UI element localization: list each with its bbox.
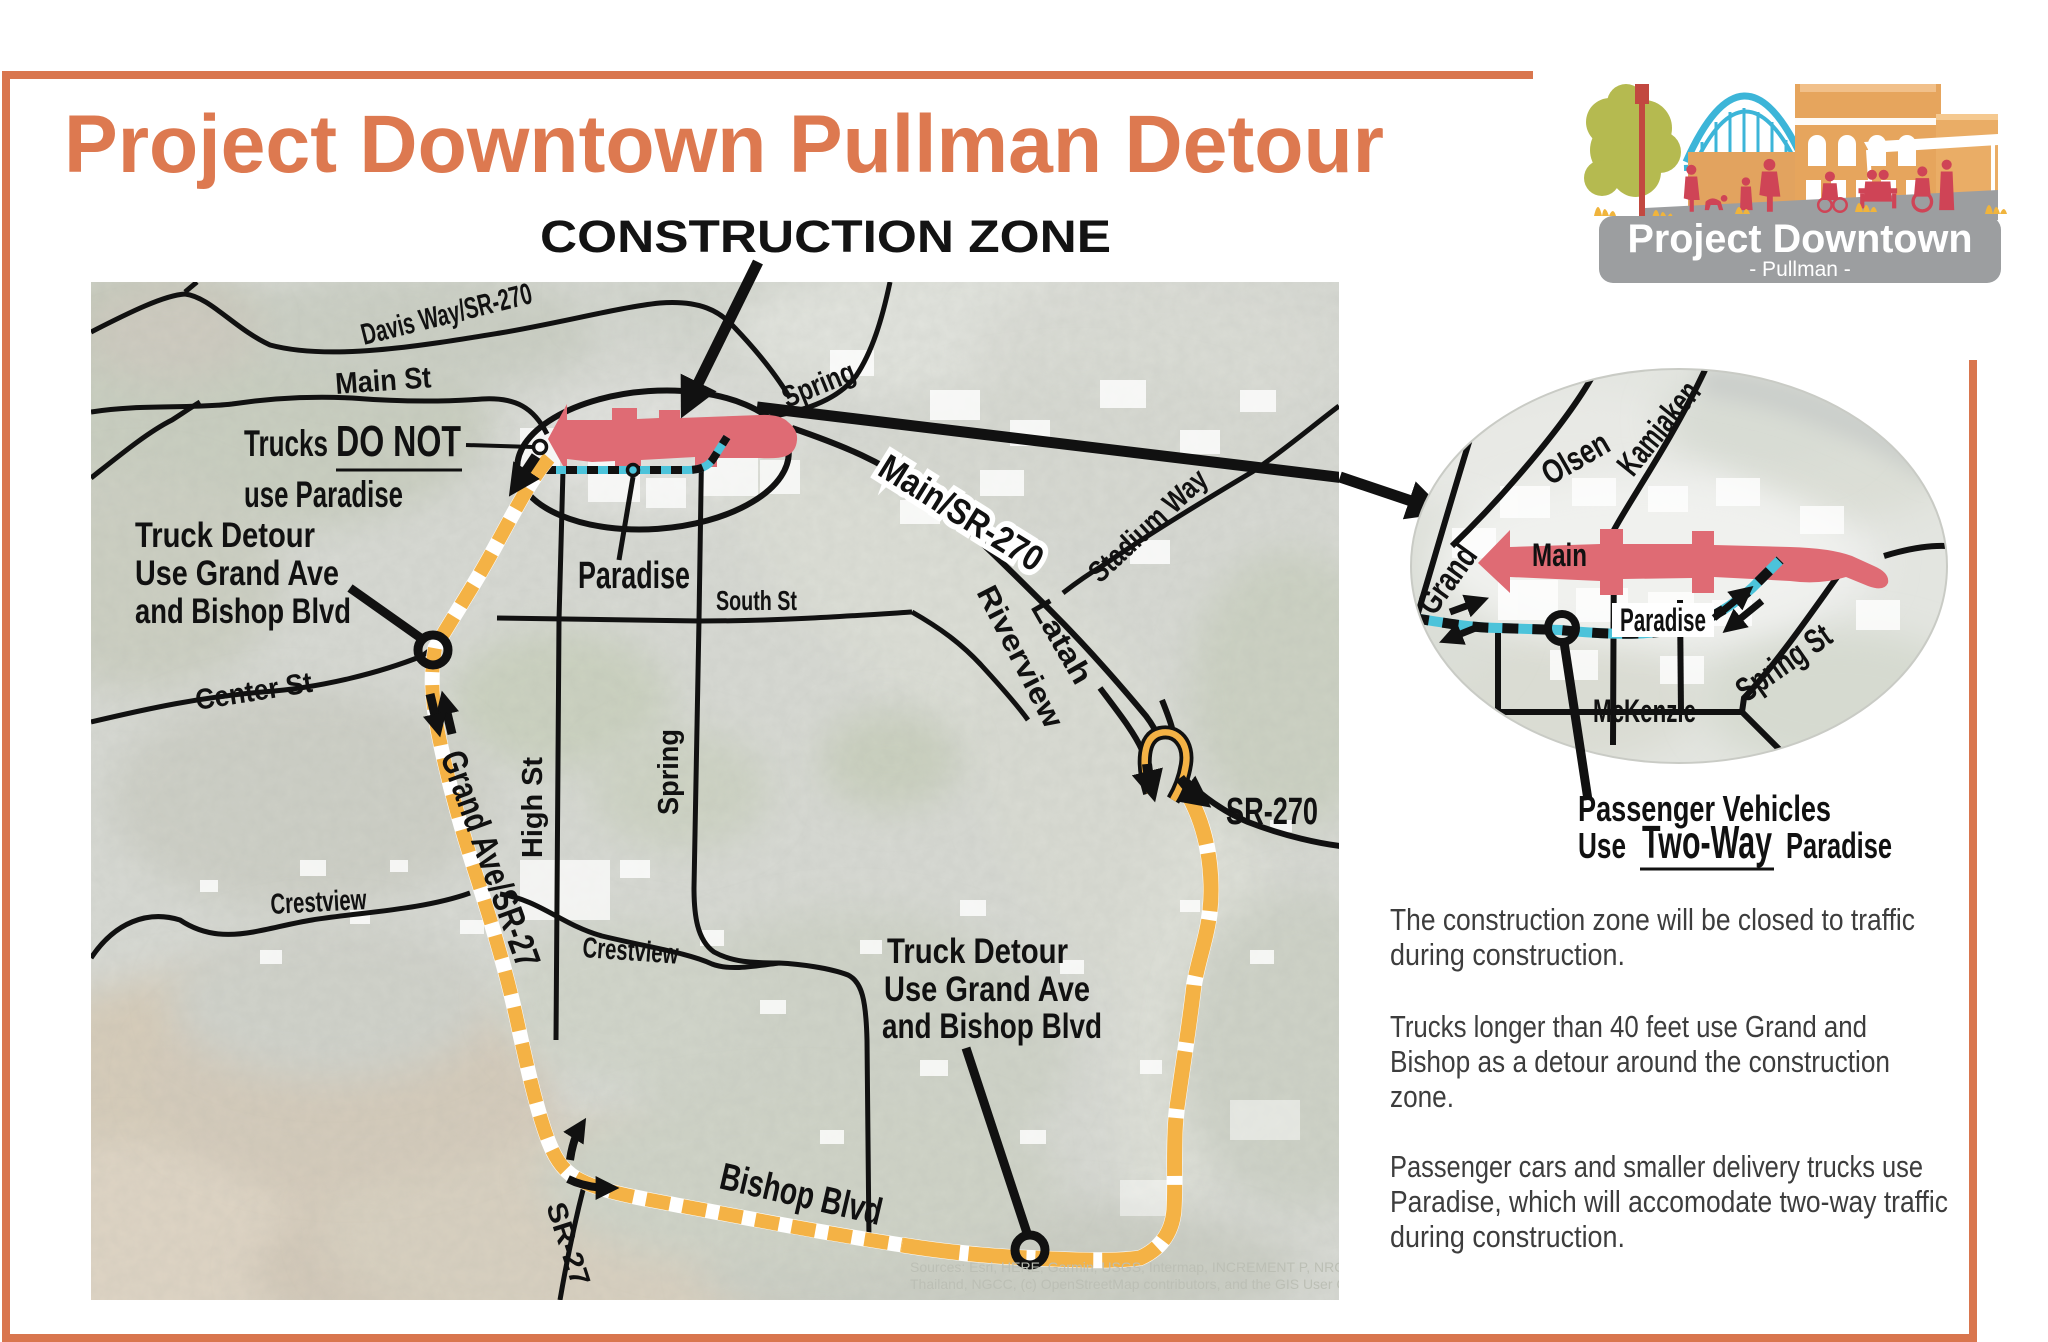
svg-text:SR-270: SR-270	[1226, 791, 1318, 833]
svg-text:Main: Main	[1532, 537, 1587, 573]
svg-text:Project Downtown: Project Downtown	[1628, 217, 1973, 261]
svg-text:Trucks longer than 40 feet use: Trucks longer than 40 feet use Grand and	[1390, 1009, 1867, 1044]
svg-text:Two-Way: Two-Way	[1642, 816, 1772, 868]
svg-text:use Paradise: use Paradise	[244, 474, 403, 515]
svg-text:Spring: Spring	[653, 729, 685, 815]
svg-text:Use: Use	[1578, 825, 1626, 866]
svg-text:zone.: zone.	[1390, 1079, 1454, 1114]
svg-text:McKenzie: McKenzie	[1593, 693, 1696, 729]
svg-text:Use Grand Ave: Use Grand Ave	[135, 554, 339, 593]
svg-text:- Pullman -: - Pullman -	[1749, 258, 1851, 281]
svg-text:and Bishop Blvd: and Bishop Blvd	[135, 592, 351, 631]
svg-text:Main St: Main St	[334, 361, 432, 401]
svg-text:Project Downtown Pullman Detou: Project Downtown Pullman Detour	[64, 99, 1384, 190]
svg-text:Crestview: Crestview	[270, 884, 368, 921]
svg-text:The construction zone will be: The construction zone will be closed to …	[1390, 902, 1915, 937]
svg-text:Passenger cars and smaller del: Passenger cars and smaller delivery truc…	[1390, 1149, 1923, 1184]
svg-text:Crestview: Crestview	[582, 932, 680, 971]
svg-text:Paradise: Paradise	[1620, 602, 1706, 638]
svg-text:and Bishop Blvd: and Bishop Blvd	[882, 1007, 1102, 1046]
svg-text:DO NOT: DO NOT	[336, 417, 461, 466]
svg-text:Use Grand Ave: Use Grand Ave	[884, 970, 1090, 1009]
svg-text:Trucks: Trucks	[244, 423, 328, 464]
svg-text:Bishop as a detour around the: Bishop as a detour around the constructi…	[1390, 1044, 1890, 1079]
svg-text:South St: South St	[716, 585, 797, 616]
svg-text:Paradise: Paradise	[1786, 825, 1892, 866]
svg-text:CONSTRUCTION ZONE: CONSTRUCTION ZONE	[540, 211, 1111, 262]
svg-text:Paradise: Paradise	[578, 555, 690, 597]
svg-text:High St: High St	[517, 757, 549, 858]
svg-text:during construction.: during construction.	[1390, 1219, 1625, 1254]
svg-text:Truck Detour: Truck Detour	[887, 932, 1068, 971]
svg-text:Truck Detour: Truck Detour	[135, 516, 315, 555]
svg-text:Paradise, which will accomodat: Paradise, which will accomodate two-way …	[1390, 1184, 1948, 1219]
svg-text:during construction.: during construction.	[1390, 937, 1625, 972]
